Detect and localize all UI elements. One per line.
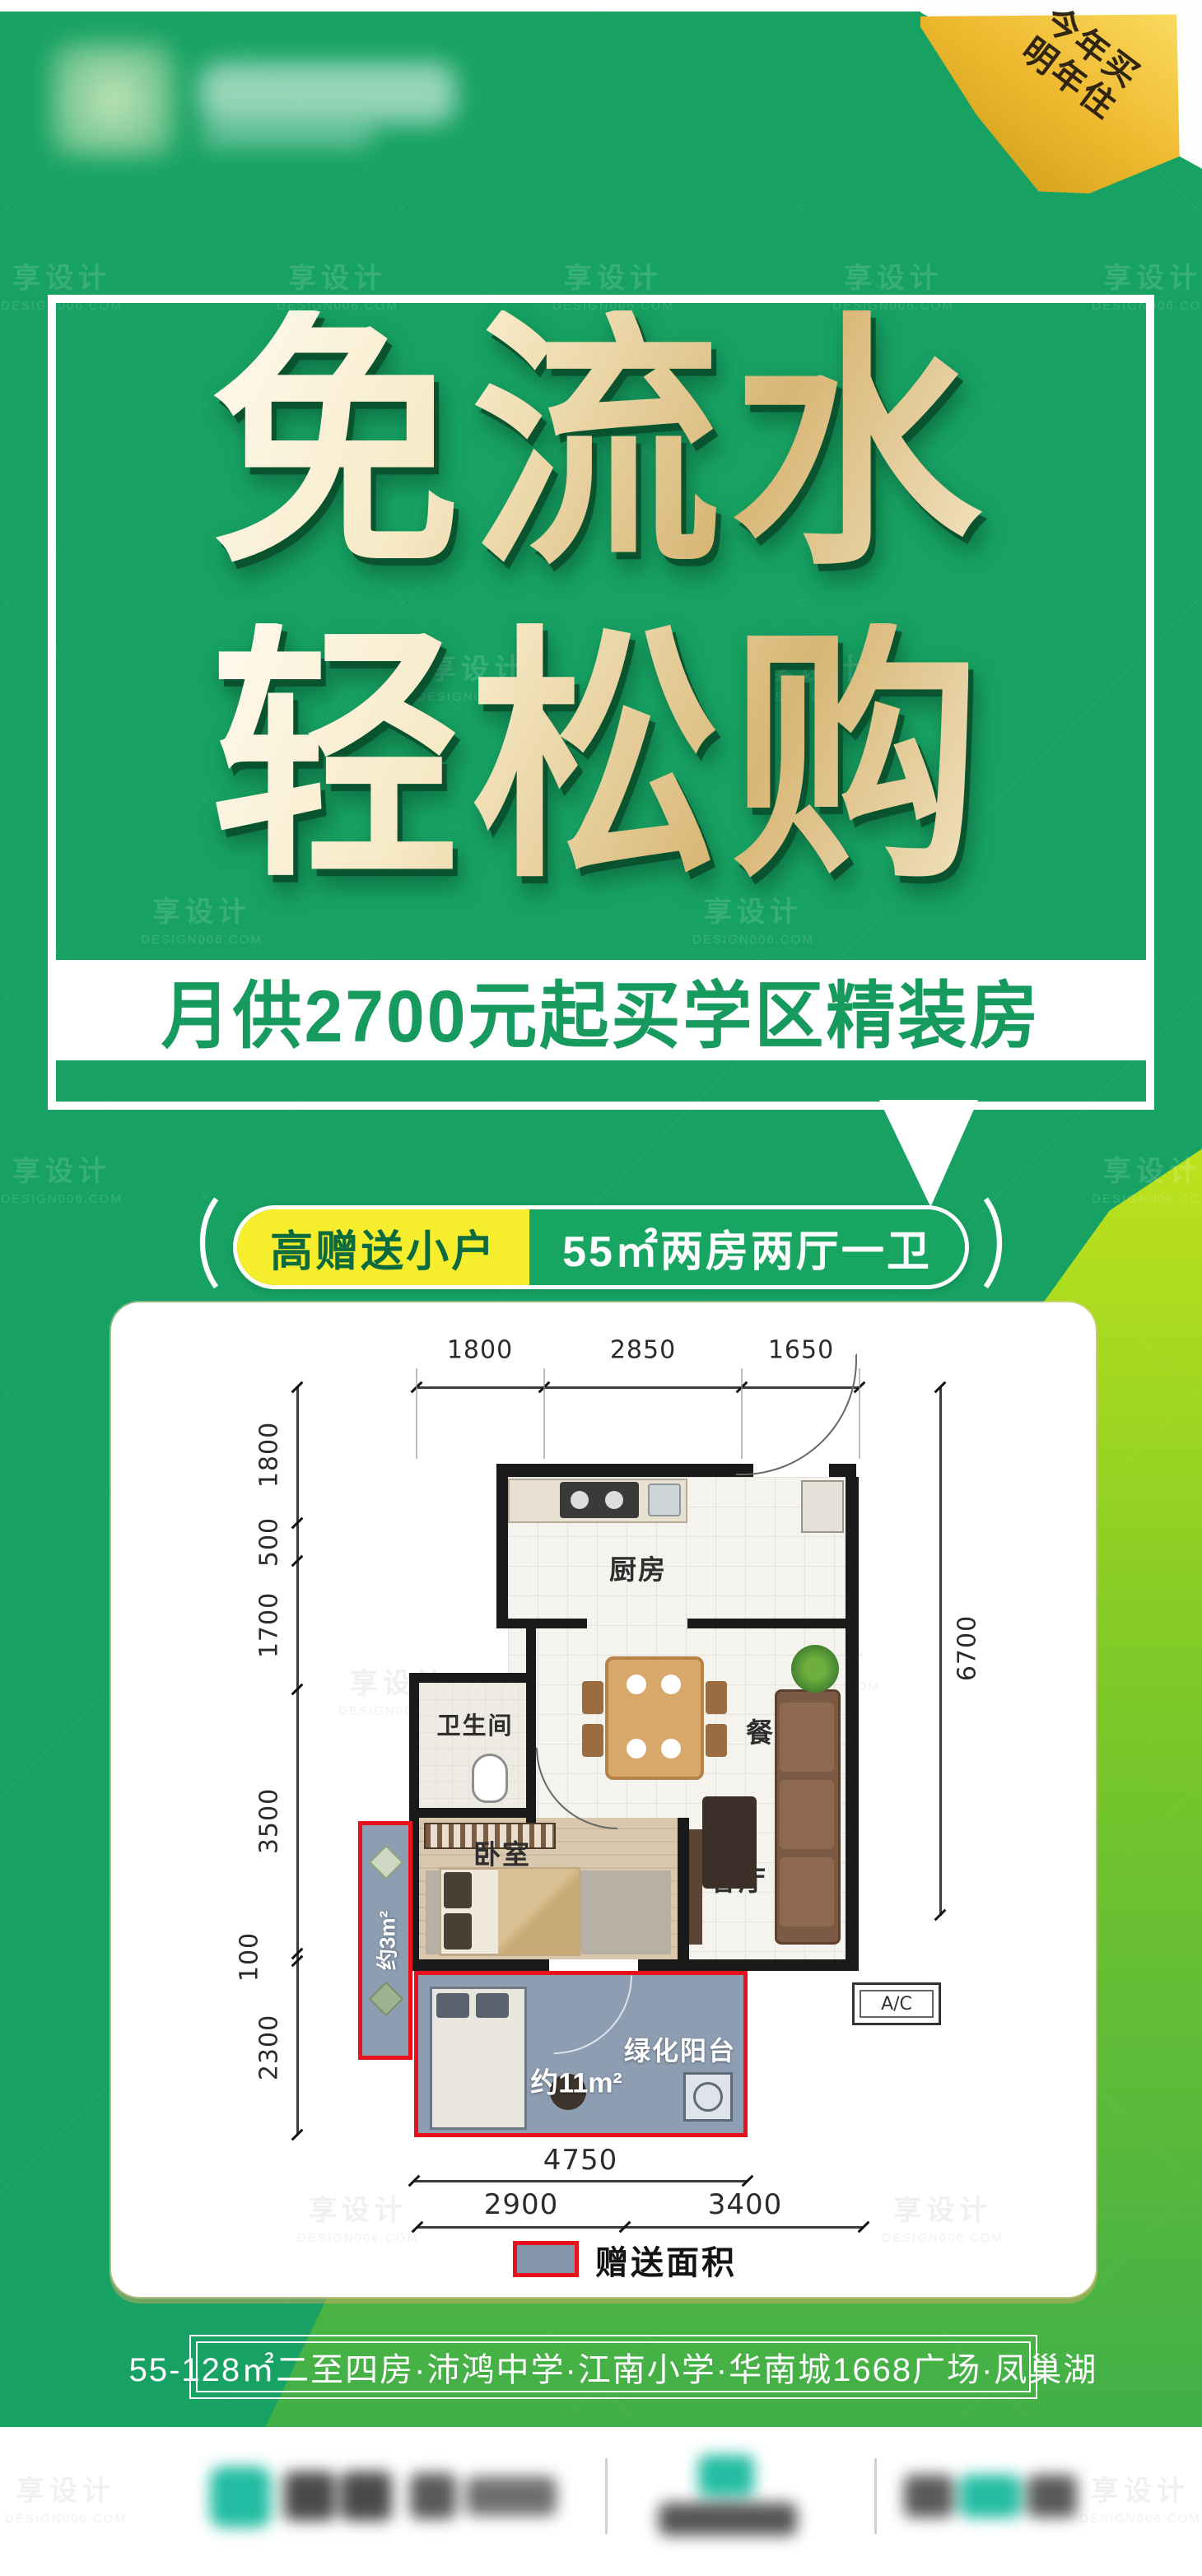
pillow-icon bbox=[444, 1872, 472, 1908]
wall-kitchen-left bbox=[496, 1464, 508, 1628]
subtitle-band: 月供2700元起买学区精装房 bbox=[48, 960, 1154, 1060]
wall-bath-top bbox=[409, 1673, 536, 1683]
room-label-kitchen: 厨房 bbox=[609, 1548, 667, 1587]
gift-area-balcony: 约11m² 绿化阳台 bbox=[414, 1971, 748, 2137]
watermark: 享设计DESIGN006.COM bbox=[1079, 2468, 1201, 2526]
plant-icon bbox=[791, 1645, 839, 1693]
footer-logo-icon bbox=[698, 2455, 754, 2496]
badge-row: （ 高赠送小户 55㎡两房两厅一卫 ） bbox=[0, 1205, 1202, 1289]
dining-chair bbox=[582, 1724, 603, 1757]
dim-balcony-4750: 4750 bbox=[543, 2144, 618, 2177]
dim-line-4750 bbox=[414, 2180, 748, 2182]
cushion-diamond bbox=[369, 1845, 403, 1880]
dim-top-1800: 1800 bbox=[447, 1336, 513, 1365]
dim-top-2850: 2850 bbox=[610, 1336, 676, 1365]
badge-close-paren: ） bbox=[981, 1199, 1051, 1295]
badge-open-paren: （ bbox=[151, 1199, 221, 1295]
balcony-pillow bbox=[476, 1993, 509, 2018]
watermark: 享设计DESIGN006.COM bbox=[1, 1148, 123, 1206]
footer-logo-glyph bbox=[904, 2475, 953, 2518]
room-label-bedroom: 卧室 bbox=[473, 1833, 531, 1872]
dining-chair bbox=[582, 1681, 603, 1714]
dim-right-6700: 6700 bbox=[953, 1615, 982, 1681]
footer-logo-glyph bbox=[410, 2473, 456, 2519]
legend-label: 赠送面积 bbox=[595, 2236, 737, 2284]
sofa-cushion bbox=[780, 1703, 834, 1772]
dim-bottom-3400: 3400 bbox=[708, 2188, 783, 2221]
gift-small-label: 约3m² bbox=[371, 1911, 402, 1970]
plate-icon bbox=[627, 1675, 646, 1694]
cushion-diamond bbox=[369, 1982, 403, 2016]
kitchen-sink bbox=[648, 1484, 681, 1516]
info-bar: 55-128㎡二至四房·沛鸿中学·江南小学·华南城1668广场·凤巢湖 bbox=[189, 2335, 1037, 2399]
info-bar-inner: 55-128㎡二至四房·沛鸿中学·江南小学·华南城1668广场·凤巢湖 bbox=[196, 2341, 1031, 2392]
info-bar-text: 55-128㎡二至四房·沛鸿中学·江南小学·华南城1668广场·凤巢湖 bbox=[129, 2343, 1098, 2391]
real-estate-poster: 享设计DESIGN006.COM 享设计DESIGN006.COM 享设计DES… bbox=[0, 0, 1202, 2576]
dining-table bbox=[605, 1656, 704, 1780]
room-label-balcony: 绿化阳台 bbox=[624, 2030, 736, 2068]
badge-pill: 高赠送小户 55㎡两房两厅一卫 bbox=[233, 1205, 969, 1289]
dim-left-1800: 1800 bbox=[255, 1422, 284, 1488]
watermark: 享设计DESIGN006.COM bbox=[297, 2187, 419, 2245]
gift-area-small: 约3m² bbox=[358, 1821, 412, 2060]
badge-left-label: 高赠送小户 bbox=[237, 1209, 529, 1285]
footer-divider bbox=[874, 2458, 877, 2534]
tv-console-icon bbox=[689, 1829, 702, 1945]
balcony-pillow bbox=[436, 1993, 469, 2018]
dim-bottom-2900: 2900 bbox=[484, 2188, 559, 2221]
dim-line-bottom bbox=[417, 2226, 864, 2229]
ac-label: A/C bbox=[860, 1990, 934, 2018]
main-title-line2: 轻松购 bbox=[0, 623, 1202, 893]
dim-ext bbox=[543, 1368, 545, 1459]
footer-logo-glyph bbox=[466, 2476, 557, 2516]
dim-ext bbox=[859, 1368, 860, 1459]
coffee-table-icon bbox=[702, 1796, 757, 1889]
watermark: 享设计DESIGN006.COM bbox=[5, 2468, 127, 2526]
dim-left-100: 100 bbox=[235, 1932, 264, 1982]
wall-bath-bottom bbox=[409, 1808, 536, 1818]
stove-burner bbox=[571, 1491, 589, 1509]
floor-plan-card: 享设计DESIGN006.COM 享设计DESIGN006.COM 享设计DES… bbox=[111, 1302, 1096, 2297]
developer-logo-emblem-blurred bbox=[51, 43, 175, 156]
dim-line-left bbox=[296, 1386, 299, 2136]
legend-swatch bbox=[513, 2241, 579, 2277]
corner-page-fold: 今年买 明年住 bbox=[920, 0, 1202, 206]
dim-line-right bbox=[939, 1386, 942, 1916]
footer-logo-icon bbox=[210, 2467, 271, 2527]
gift-balcony-label: 约11m² bbox=[530, 2061, 622, 2101]
footer-logo-glyph bbox=[659, 2503, 797, 2536]
footer-logo-glyph bbox=[284, 2471, 335, 2521]
wall-right-outer bbox=[846, 1477, 859, 1971]
washer-drum bbox=[693, 2082, 723, 2112]
wall-living-bottom bbox=[638, 1959, 859, 1971]
pillow-icon bbox=[444, 1913, 472, 1949]
main-title-line1: 免流水 bbox=[0, 310, 1202, 580]
dim-left-2300: 2300 bbox=[255, 2015, 284, 2080]
watermark: 享设计DESIGN006.COM bbox=[882, 2187, 1004, 2245]
dim-left-500: 500 bbox=[255, 1517, 284, 1567]
footer-logo-glyph bbox=[960, 2475, 1021, 2518]
footer-logo-glyph bbox=[1027, 2475, 1077, 2518]
dining-chair bbox=[706, 1681, 727, 1714]
toilet-icon bbox=[472, 1754, 508, 1803]
sofa-cushion bbox=[780, 1857, 834, 1926]
wall-kitchen-bottom-1 bbox=[496, 1619, 587, 1628]
footer-divider bbox=[605, 2458, 608, 2534]
wall-bedroom-bottom bbox=[409, 1959, 549, 1971]
subtitle-text: 月供2700元起买学区精装房 bbox=[161, 957, 1041, 1063]
plate-icon bbox=[661, 1739, 681, 1758]
plate-icon bbox=[627, 1739, 646, 1758]
footer-logo-glyph bbox=[341, 2471, 392, 2521]
blanket-icon bbox=[498, 1869, 579, 1954]
wall-bedroom-living-divider bbox=[678, 1818, 689, 1959]
dim-ext bbox=[416, 1368, 417, 1459]
dining-chair bbox=[706, 1724, 727, 1757]
developer-logo-text-blurred bbox=[199, 63, 456, 123]
entry-door-arc bbox=[735, 1353, 857, 1475]
dim-left-1700: 1700 bbox=[255, 1592, 284, 1658]
title-frame-tail bbox=[879, 1100, 978, 1207]
balcony-door-arc bbox=[553, 1975, 632, 2054]
fridge-icon bbox=[801, 1480, 844, 1533]
wall-kitchen-bottom-2 bbox=[687, 1619, 856, 1628]
dim-left-3500: 3500 bbox=[255, 1788, 284, 1854]
developer-logo-tagline-blurred bbox=[201, 125, 374, 147]
plate-icon bbox=[661, 1675, 681, 1694]
sofa-cushion bbox=[780, 1780, 834, 1849]
footer: 享设计DESIGN006.COM 享设计DESIGN006.COM bbox=[0, 2427, 1202, 2576]
stove-burner bbox=[605, 1491, 623, 1509]
badge-right-label: 55㎡两房两厅一卫 bbox=[529, 1209, 965, 1285]
ac-platform: A/C bbox=[852, 1982, 941, 2025]
room-label-bathroom: 卫生间 bbox=[436, 1707, 513, 1741]
